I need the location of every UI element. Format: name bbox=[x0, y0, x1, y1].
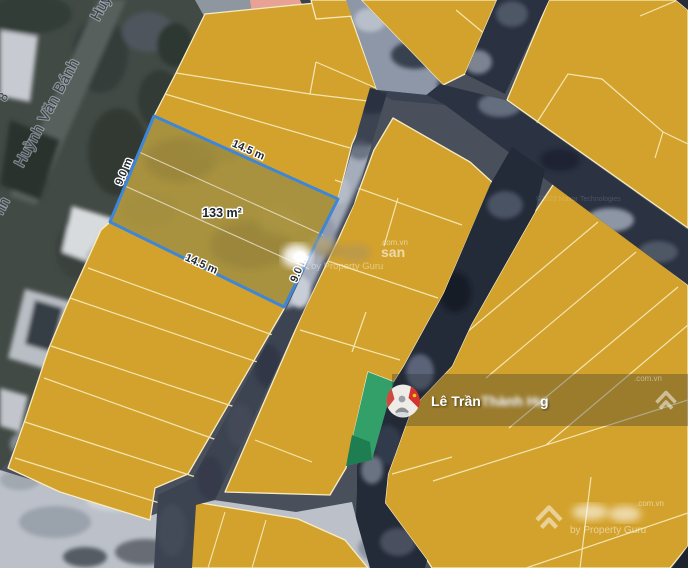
svg-text:.com.vn: .com.vn bbox=[636, 499, 664, 508]
svg-text:g: g bbox=[540, 393, 549, 409]
svg-text:Lê Trần: Lê Trần bbox=[431, 393, 481, 409]
svg-text:.com.vn: .com.vn bbox=[634, 374, 662, 383]
svg-text:by Property Guru: by Property Guru bbox=[311, 261, 383, 272]
svg-text:©2023 Maxar Technologies: ©2023 Maxar Technologies bbox=[536, 195, 621, 203]
svg-text:133 m²: 133 m² bbox=[202, 206, 242, 220]
svg-text:by Property Guru: by Property Guru bbox=[570, 525, 646, 536]
svg-text:Thành Hư: Thành Hư bbox=[481, 393, 548, 409]
svg-text:san: san bbox=[381, 244, 405, 260]
